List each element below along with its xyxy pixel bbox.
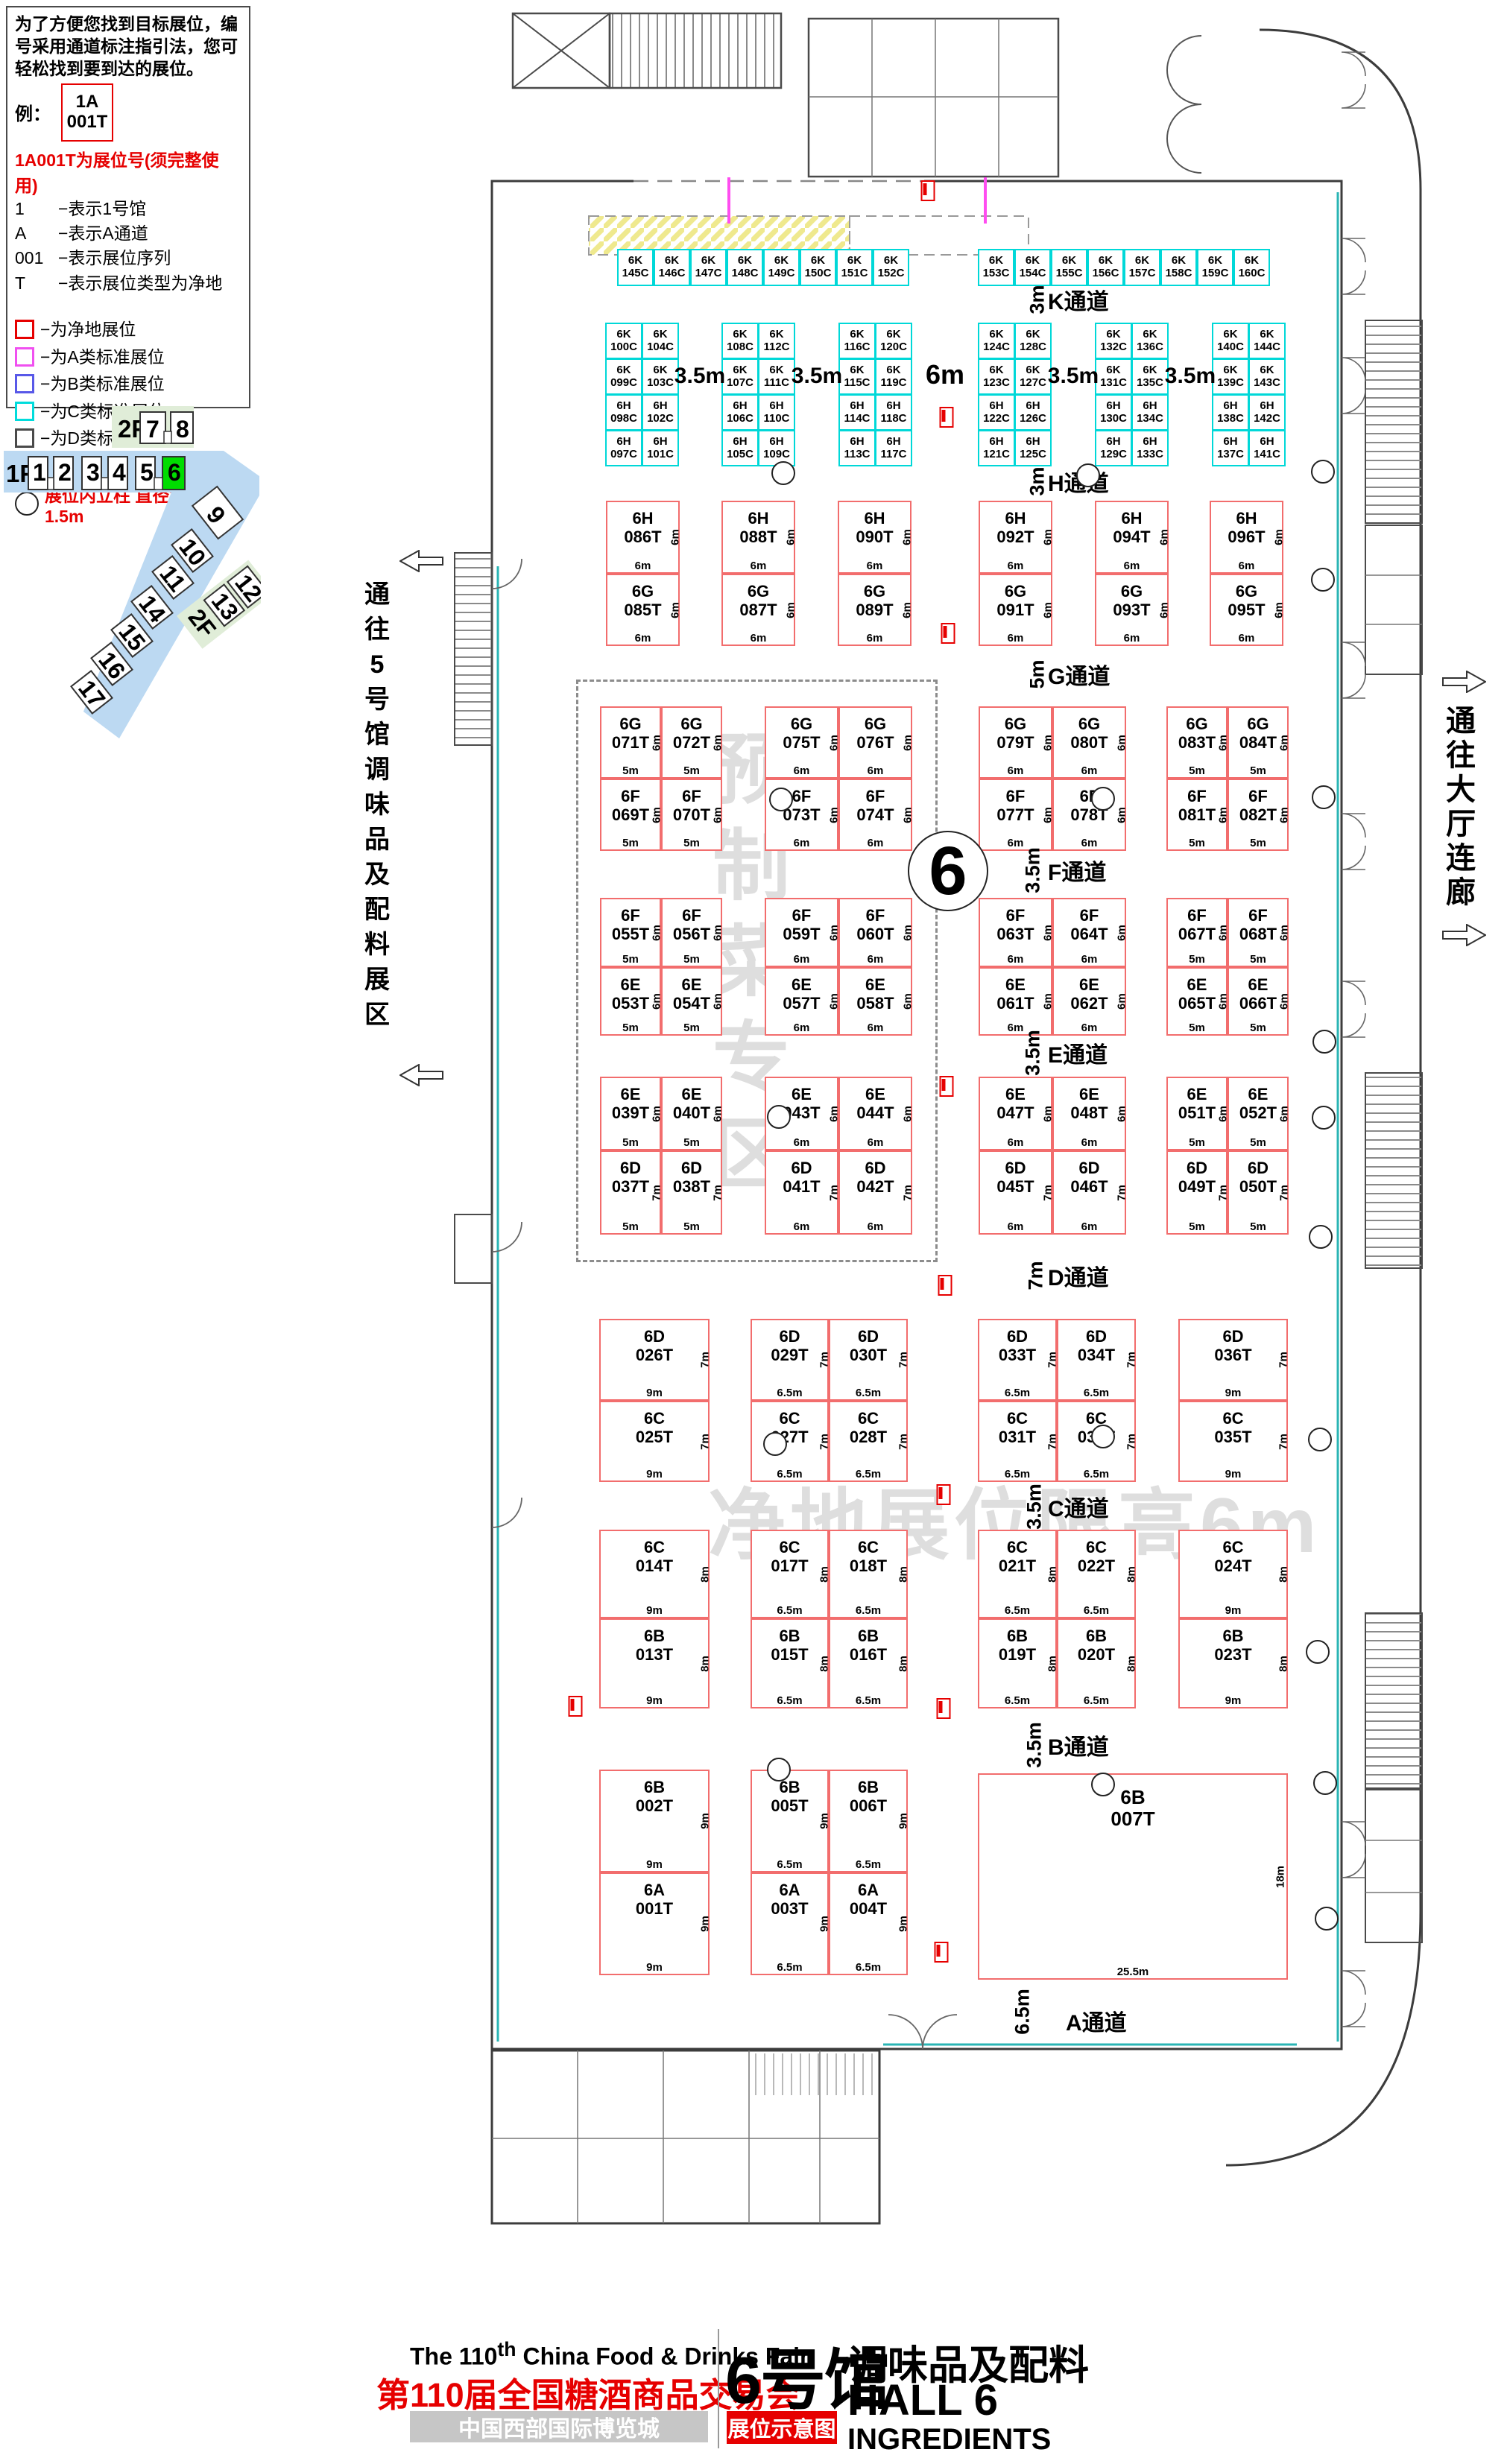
booth-depth-dim: 6m [1278, 735, 1291, 751]
hall-selector-minimap: 2F 7 8 1F 1 2 3 4 5 6 9 10 11 [0, 405, 261, 740]
fire-well-icon [569, 1696, 583, 1717]
booth-6B023T: 6B023T8m9m [1178, 1618, 1288, 1708]
corridor-note-left: 通往5号馆调味品及配料展区 [359, 577, 395, 1033]
booth-6K157C: 6K157C [1124, 249, 1160, 286]
booth-label: 6H122C [983, 400, 1010, 425]
booth-6G095T: 6G095T6m6m [1210, 574, 1283, 646]
legend-booth-code-note: 1A001T为展位号(须完整使用) [15, 146, 241, 197]
booth-label: 6D033T [999, 1328, 1036, 1364]
legend-key-row: 001−表示展位序列 [15, 246, 241, 270]
booth-depth-dim: 6m [902, 807, 914, 823]
booth-width-dim: 6m [839, 632, 910, 644]
booth-width-dim: 6.5m [979, 1468, 1055, 1480]
booth-6K108C: 6K108C [721, 323, 759, 359]
booth-label: 6G083T [1178, 715, 1216, 752]
booth-width-dim: 6m [840, 1136, 911, 1149]
booth-label: 6K146C [659, 255, 686, 280]
booth-width-dim: 6.5m [752, 1694, 827, 1707]
booth-width-dim: 5m [1229, 1136, 1287, 1149]
booth-label: 6K145C [622, 255, 649, 280]
gap-dim-label: 3.5m [1048, 364, 1099, 389]
booth-label: 6A003T [771, 1881, 808, 1918]
booth-width-dim: 5m [663, 1220, 721, 1233]
booth-label: 6G093T [1113, 583, 1150, 619]
booth-label: 6D030T [850, 1328, 887, 1364]
vertical-text-char: 调 [364, 753, 390, 788]
booth-6K119C: 6K119C [875, 358, 912, 395]
title-block: The 110th China Food & Drinks Fair 第110届… [376, 2323, 1271, 2464]
booth-label: 6C014T [636, 1539, 673, 1575]
booth-6K158C: 6K158C [1160, 249, 1197, 286]
swatch-type-a [15, 347, 34, 367]
booth-width-dim: 5m [1229, 1022, 1287, 1034]
minimap-hall-1-label: 1 [33, 459, 46, 486]
legend-key-row: 1−表示1号馆 [15, 197, 241, 221]
booth-6K099C: 6K099C [605, 358, 642, 395]
booth-label: 6H137C [1217, 436, 1244, 461]
booth-6K111C: 6K111C [758, 358, 795, 395]
booth-width-dim: 6.5m [1058, 1387, 1134, 1399]
booth-label: 6C028T [850, 1410, 887, 1446]
booth-label: 6C017T [771, 1539, 808, 1575]
booth-label: 6H094T [1113, 510, 1150, 546]
booth-6B006T: 6B006T9m6.5m [829, 1770, 908, 1872]
booth-width-dim: 6m [840, 764, 911, 777]
booth-label: 6E053T [612, 976, 649, 1013]
booth-6H097C: 6H097C [605, 430, 642, 466]
booth-depth-dim: 6m [901, 529, 914, 545]
booth-6C021T: 6C021T8m6.5m [978, 1530, 1057, 1618]
swatch-clear-ground [15, 320, 34, 339]
booth-6B015T: 6B015T8m6.5m [751, 1618, 829, 1708]
booth-label: 6F064T [1070, 907, 1108, 943]
arrow-right-icon [1441, 924, 1486, 946]
booth-width-dim: 5m [601, 764, 660, 777]
booth-depth-dim: 6m [1116, 807, 1128, 823]
booth-6G080T: 6G080T6m6m [1052, 706, 1126, 779]
booth-label: 6B002T [636, 1779, 673, 1815]
booth-label: 6H092T [996, 510, 1034, 546]
booth-6K143C: 6K143C [1248, 358, 1286, 395]
booth-6G089T: 6G089T6m6m [838, 574, 912, 646]
booth-width-dim: 5m [601, 1136, 660, 1149]
booth-6H117C: 6H117C [875, 430, 912, 466]
booth-label: 6E057T [783, 976, 820, 1013]
hall-subtitle: INGREDIENTS [847, 2423, 1051, 2457]
booth-6E047T: 6E047T6m6m [979, 1077, 1052, 1150]
booth-depth-dim: 6m [902, 993, 914, 1010]
booth-label: 6A001T [636, 1881, 673, 1918]
booth-6G075T: 6G075T6m6m [765, 706, 838, 779]
aisle-width-dim: 3m [1026, 285, 1049, 314]
booth-label: 6K124C [983, 329, 1010, 354]
booth-6H092T: 6H092T6m6m [979, 501, 1052, 574]
booth-label: 6K112C [763, 329, 789, 354]
booth-6H138C: 6H138C [1212, 394, 1249, 431]
booth-6F070T: 6F070T6m5m [661, 779, 722, 851]
booth-6D045T: 6D045T7m6m [979, 1150, 1052, 1235]
booth-label: 6E061T [996, 976, 1034, 1013]
booth-6F067T: 6F067T6m5m [1166, 898, 1228, 967]
booth-width-dim: 5m [1229, 953, 1287, 966]
pillar-icon [767, 1758, 791, 1782]
booth-width-dim: 5m [663, 1136, 721, 1149]
pillar-icon [1313, 1771, 1337, 1795]
booth-width-dim: 6m [980, 764, 1051, 777]
booth-6B019T: 6B019T8m6.5m [978, 1618, 1057, 1708]
booth-label: 6G087T [739, 583, 777, 619]
booth-6H090T: 6H090T6m6m [838, 501, 912, 574]
booth-width-dim: 6m [1054, 837, 1125, 849]
booth-6D029T: 6D029T7m6.5m [751, 1319, 829, 1401]
booth-label: 6K152C [878, 255, 905, 280]
booth-label: 6D026T [636, 1328, 673, 1364]
aisle-width-dim: 3m [1026, 466, 1049, 495]
booth-label: 6G095T [1228, 583, 1265, 619]
booth-width-dim: 6m [840, 1220, 911, 1233]
booth-label: 6H101C [647, 436, 674, 461]
booth-6D037T: 6D037T7m5m [600, 1150, 661, 1235]
booth-depth-dim: 6m [901, 602, 914, 618]
aisle-width-dim: 6.5m [1011, 1989, 1034, 2035]
booth-label: 6K131C [1100, 364, 1127, 390]
booth-width-dim: 6.5m [830, 1858, 906, 1871]
booth-label: 6D049T [1178, 1159, 1216, 1196]
booth-6H098C: 6H098C [605, 394, 642, 431]
vertical-text-char: 通 [1446, 704, 1476, 738]
hall-number-badge: 6 [908, 831, 988, 911]
booth-depth-dim: 6m [1116, 735, 1128, 751]
booth-width-dim: 6m [1096, 560, 1167, 572]
booth-label: 6F056T [673, 907, 710, 943]
booth-depth-dim: 7m [897, 1352, 910, 1368]
booth-label: 6K140C [1217, 329, 1244, 354]
aisle-label-K通道: K通道 [1048, 283, 1109, 316]
pillar-icon [771, 461, 795, 485]
booth-6K147C: 6K147C [690, 249, 727, 286]
booth-label: 6D042T [856, 1159, 894, 1196]
fire-well-icon [935, 1942, 949, 1963]
fair-name-cn: 第110届全国糖酒商品交易会 [376, 2368, 708, 2416]
booth-6K154C: 6K154C [1014, 249, 1051, 286]
booth-depth-dim: 9m [897, 1916, 910, 1932]
booth-label: 6H126C [1020, 400, 1046, 425]
booth-label: 6H109C [763, 436, 790, 461]
booth-label: 6K139C [1217, 364, 1244, 390]
booth-label: 6B006T [850, 1779, 887, 1815]
booth-6C014T: 6C014T8m9m [599, 1530, 710, 1618]
booth-label: 6E040T [673, 1086, 710, 1122]
booth-label: 6K127C [1020, 364, 1046, 390]
booth-6K139C: 6K139C [1212, 358, 1249, 395]
booth-6E040T: 6E040T6m5m [661, 1077, 722, 1150]
booth-depth-dim: 7m [1277, 1434, 1290, 1450]
aisle-width-dim: 3.5m [1023, 1483, 1046, 1530]
swatch-label: −为B类标准展位 [40, 371, 165, 397]
booth-label: 6H117C [880, 436, 906, 461]
arrow-left-icon [399, 1064, 444, 1086]
aisle-label-D通道: D通道 [1048, 1259, 1109, 1292]
booth-6F068T: 6F068T6m5m [1228, 898, 1289, 967]
booth-width-dim: 6m [1211, 560, 1282, 572]
booth-6K107C: 6K107C [721, 358, 759, 395]
example-booth-line1: 1A [76, 92, 99, 112]
booth-width-dim: 5m [663, 764, 721, 777]
vertical-text-char: 料 [364, 928, 390, 963]
booth-6F059T: 6F059T6m6m [765, 898, 838, 967]
booth-6H126C: 6H126C [1014, 394, 1052, 431]
booth-depth-dim: 8m [1277, 1656, 1290, 1672]
map-tag: 展位示意图 [727, 2411, 837, 2444]
booth-width-dim: 6m [607, 560, 678, 572]
key: T [15, 271, 58, 296]
booth-6G093T: 6G093T6m6m [1095, 574, 1169, 646]
booth-label: 6F060T [856, 907, 894, 943]
aisle-label-A通道: A通道 [1066, 2004, 1127, 2037]
booth-6A001T: 6A001T9m9m [599, 1872, 710, 1975]
booth-width-dim: 6m [980, 560, 1051, 572]
booth-width-dim: 6m [766, 1022, 837, 1034]
booth-label: 6D041T [783, 1159, 820, 1196]
booth-6H141C: 6H141C [1248, 430, 1286, 466]
booth-6E053T: 6E053T6m5m [600, 967, 661, 1036]
booth-6K145C: 6K145C [617, 249, 654, 286]
booth-6F082T: 6F082T6m5m [1228, 779, 1289, 851]
booth-label: 6H142C [1254, 400, 1280, 425]
vertical-text-char: 馆 [364, 718, 390, 753]
booth-label: 6F074T [856, 788, 894, 824]
booth-6H130C: 6H130C [1095, 394, 1132, 431]
key-desc: −表示1号馆 [58, 197, 146, 221]
fair-name-en: The 110th China Food & Drinks Fair [410, 2338, 708, 2371]
booth-width-dim: 6m [1054, 1022, 1125, 1034]
booth-label: 6H141C [1254, 436, 1280, 461]
booth-width-dim: 6.5m [752, 1604, 827, 1617]
fair-name-en-sup: th [497, 2338, 516, 2360]
booth-label: 6F063T [996, 907, 1034, 943]
swatch-label: −为净地展位 [40, 317, 136, 343]
booth-label: 6K115C [844, 364, 870, 390]
booth-depth-dim: 6m [902, 735, 914, 751]
booth-depth-dim: 6m [1158, 529, 1171, 545]
booth-label: 6K156C [1093, 255, 1119, 280]
booth-6H094T: 6H094T6m6m [1095, 501, 1169, 574]
booth-label: 6D045T [996, 1159, 1034, 1196]
key: 001 [15, 246, 58, 270]
minimap-hall-7-label: 7 [146, 416, 159, 443]
booth-depth-dim: 8m [897, 1656, 910, 1672]
booth-6G079T: 6G079T6m6m [979, 706, 1052, 779]
booth-depth-dim: 6m [1278, 925, 1291, 941]
booth-width-dim: 9m [601, 1858, 708, 1871]
booth-label: 6D037T [612, 1159, 649, 1196]
booth-6H133C: 6H133C [1131, 430, 1169, 466]
booth-label: 6E054T [673, 976, 710, 1013]
booth-6H102C: 6H102C [642, 394, 679, 431]
pillar-icon [1091, 1773, 1115, 1796]
booth-6C025T: 6C025T7m9m [599, 1401, 710, 1482]
booth-label: 6C022T [1078, 1539, 1115, 1575]
booth-6G084T: 6G084T6m5m [1228, 706, 1289, 779]
floor-plan-page: 净地展位限高6m 预制菜专区 6K145C6K146C6K147C6K148C6… [0, 0, 1507, 2464]
booth-6K112C: 6K112C [758, 323, 795, 359]
booth-6K136C: 6K136C [1131, 323, 1169, 359]
booth-6H101C: 6H101C [642, 430, 679, 466]
booth-width-dim: 6m [980, 632, 1051, 644]
booth-label: 6D050T [1239, 1159, 1277, 1196]
minimap-hall-3-label: 3 [86, 459, 100, 486]
booth-6H105C: 6H105C [721, 430, 759, 466]
booth-label: 6B007T [1110, 1787, 1154, 1830]
booth-label: 6K120C [880, 329, 907, 354]
gap-dim-label: 3.5m [674, 364, 725, 389]
arrow-right-icon [1441, 671, 1486, 693]
booth-6D034T: 6D034T7m6.5m [1057, 1319, 1136, 1401]
booth-width-dim: 6m [980, 1136, 1051, 1149]
legend-swatch-row: −为B类标准展位 [15, 371, 241, 397]
booth-6K135C: 6K135C [1131, 358, 1169, 395]
booth-label: 6K144C [1254, 329, 1280, 354]
booth-depth-dim: 7m [712, 1185, 724, 1201]
booth-width-dim: 6m [766, 1220, 837, 1233]
booth-depth-dim: 9m [699, 1916, 712, 1932]
booth-label: 6H086T [624, 510, 661, 546]
booth-width-dim: 6m [980, 1220, 1051, 1233]
booth-6K153C: 6K153C [978, 249, 1014, 286]
booth-6C031T: 6C031T7m6.5m [978, 1401, 1057, 1482]
minimap-connector [48, 478, 54, 490]
booth-6D036T: 6D036T7m9m [1178, 1319, 1288, 1401]
booth-depth-dim: 6m [1158, 602, 1171, 618]
booth-6H113C: 6H113C [838, 430, 876, 466]
booth-6F074T: 6F074T6m6m [838, 779, 912, 851]
booth-label: 6K099C [610, 364, 637, 390]
booth-6F064T: 6F064T6m6m [1052, 898, 1126, 967]
booth-width-dim: 5m [1168, 837, 1226, 849]
booth-6D033T: 6D033T7m6.5m [978, 1319, 1057, 1401]
booth-6D046T: 6D046T7m6m [1052, 1150, 1126, 1235]
booth-label: 6K104C [647, 329, 674, 354]
booth-depth-dim: 9m [897, 1813, 910, 1829]
pillar-icon [763, 1432, 787, 1456]
pillar-icon [1091, 787, 1115, 811]
booth-label: 6K155C [1056, 255, 1083, 280]
booth-6H086T: 6H086T6m6m [606, 501, 680, 574]
booth-6G072T: 6G072T6m5m [661, 706, 722, 779]
booth-6E051T: 6E051T6m5m [1166, 1077, 1228, 1150]
booth-label: 6D029T [771, 1328, 808, 1364]
booth-label: 6H118C [880, 400, 906, 425]
booth-label: 6H098C [610, 400, 637, 425]
booth-depth-dim: 6m [1273, 529, 1286, 545]
pillar-icon [1312, 1030, 1336, 1054]
booth-width-dim: 5m [1229, 1220, 1287, 1233]
vertical-text-char: 配 [364, 893, 390, 928]
pillar-icon [1091, 1425, 1115, 1448]
booth-label: 6H096T [1228, 510, 1265, 546]
vertical-text-char: 往 [364, 612, 390, 647]
booth-width-dim: 5m [601, 953, 660, 966]
booth-depth-dim: 6m [1042, 602, 1055, 618]
legend-swatch-row: −为净地展位 [15, 317, 241, 343]
booth-label: 6H088T [739, 510, 777, 546]
booth-6E044T: 6E044T6m6m [838, 1077, 912, 1150]
booth-width-dim: 6m [766, 764, 837, 777]
vertical-text-char: 往 [1446, 738, 1476, 773]
aisle-label-C通道: C通道 [1048, 1490, 1109, 1523]
booth-6K160C: 6K160C [1233, 249, 1270, 286]
booth-width-dim: 6m [723, 560, 794, 572]
booth-label: 6K107C [727, 364, 753, 390]
booth-width-dim: 6m [607, 632, 678, 644]
hall-name-en: HALL 6 [847, 2375, 998, 2425]
booth-width-dim: 6m [840, 953, 911, 966]
booth-width-dim: 5m [1168, 764, 1226, 777]
booth-6B016T: 6B016T8m6.5m [829, 1618, 908, 1708]
booth-6G076T: 6G076T6m6m [838, 706, 912, 779]
booth-width-dim: 6m [766, 837, 837, 849]
booth-label: 6K128C [1020, 329, 1046, 354]
booth-6H122C: 6H122C [978, 394, 1015, 431]
booth-6H096T: 6H096T6m6m [1210, 501, 1283, 574]
booth-6H142C: 6H142C [1248, 394, 1286, 431]
booth-6H109C: 6H109C [758, 430, 795, 466]
booth-label: 6H114C [844, 400, 870, 425]
booth-label: 6A004T [850, 1881, 887, 1918]
gap-dim-label: 6m [926, 359, 964, 390]
legend-example-label: 例： [15, 99, 51, 125]
aisle-label-B通道: B通道 [1048, 1729, 1109, 1761]
booth-6H121C: 6H121C [978, 430, 1015, 466]
booth-6C017T: 6C017T8m6.5m [751, 1530, 829, 1618]
booth-depth-dim: 8m [1125, 1566, 1138, 1583]
booth-6K150C: 6K150C [800, 249, 836, 286]
booth-label: 6E058T [856, 976, 894, 1013]
booth-6K140C: 6K140C [1212, 323, 1249, 359]
booth-width-dim: 6m [1054, 1220, 1125, 1233]
minimap-hall-4-label: 4 [113, 459, 126, 486]
booth-6A003T: 6A003T9m6.5m [751, 1872, 829, 1975]
booth-6K124C: 6K124C [978, 323, 1015, 359]
booth-label: 6F070T [673, 788, 710, 824]
booth-6K146C: 6K146C [654, 249, 690, 286]
gap-dim-label: 3.5m [792, 364, 842, 389]
pillar-icon [1315, 1907, 1339, 1931]
booth-label: 6H125C [1020, 436, 1046, 461]
booth-label: 6K153C [983, 255, 1010, 280]
arrow-left-icon [399, 550, 444, 572]
booth-6E052T: 6E052T6m5m [1228, 1077, 1289, 1150]
booth-depth-dim: 6m [669, 529, 682, 545]
booth-depth-dim: 6m [1278, 993, 1291, 1010]
title-divider [718, 2329, 719, 2448]
aisle-label-E通道: E通道 [1048, 1036, 1108, 1069]
swatch-label: −为A类标准展位 [40, 344, 165, 370]
booth-6K104C: 6K104C [642, 323, 679, 359]
booth-6K156C: 6K156C [1087, 249, 1124, 286]
booth-label: 6K151C [841, 255, 868, 280]
booth-width-dim: 6m [766, 953, 837, 966]
minimap-connector [154, 478, 162, 490]
booth-depth-dim: 6m [1116, 993, 1128, 1010]
booth-6D030T: 6D030T7m6.5m [829, 1319, 908, 1401]
booth-label: 6K157C [1129, 255, 1156, 280]
booth-depth-dim: 6m [712, 925, 724, 941]
booth-label: 6F055T [612, 907, 649, 943]
booth-depth-dim: 7m [699, 1352, 712, 1368]
booth-6K120C: 6K120C [875, 323, 912, 359]
vertical-text-char: 号 [364, 682, 390, 718]
